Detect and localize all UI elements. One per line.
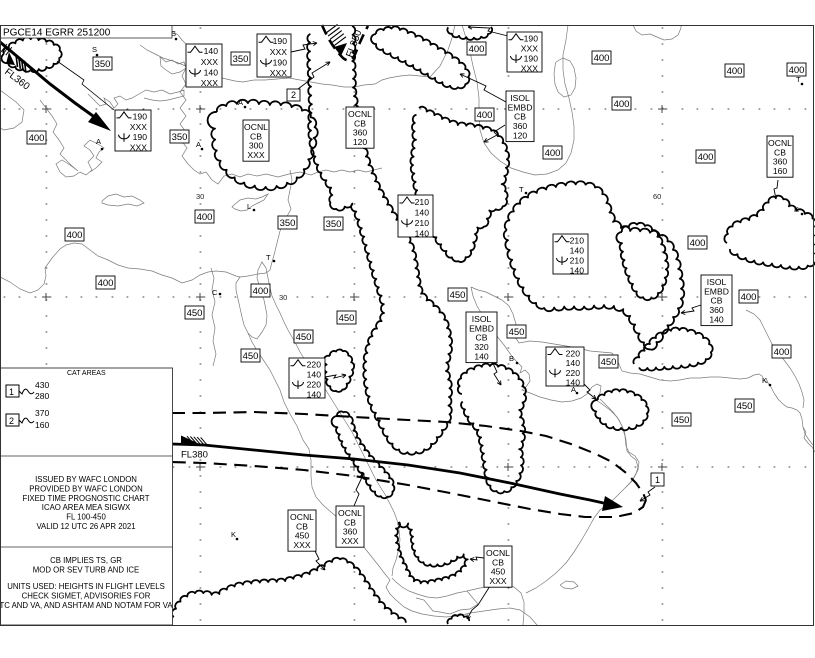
svg-text:220: 220 xyxy=(566,348,581,358)
svg-text:T: T xyxy=(796,75,801,84)
svg-text:400: 400 xyxy=(67,230,83,241)
svg-text:370: 370 xyxy=(35,408,49,418)
svg-text:140: 140 xyxy=(307,370,322,380)
svg-text:400: 400 xyxy=(690,238,706,249)
svg-text:350: 350 xyxy=(326,219,342,230)
svg-text:140: 140 xyxy=(709,315,724,325)
svg-text:FL 100-450: FL 100-450 xyxy=(66,513,106,522)
svg-text:2: 2 xyxy=(291,90,296,100)
svg-text:K: K xyxy=(762,376,767,385)
svg-text:A: A xyxy=(571,385,576,394)
svg-text:CAT AREAS: CAT AREAS xyxy=(67,370,106,377)
svg-text:K: K xyxy=(794,205,799,214)
svg-text:PGCE14 EGRR 251200: PGCE14 EGRR 251200 xyxy=(3,28,111,39)
svg-text:140: 140 xyxy=(415,228,430,238)
svg-text:S: S xyxy=(171,29,176,38)
svg-text:30: 30 xyxy=(279,293,287,302)
svg-text:1: 1 xyxy=(655,475,660,485)
svg-text:450: 450 xyxy=(509,327,525,338)
svg-text:140: 140 xyxy=(566,358,581,368)
svg-text:160: 160 xyxy=(773,166,788,176)
svg-text:450: 450 xyxy=(674,415,690,426)
svg-text:A: A xyxy=(96,137,101,146)
svg-text:450: 450 xyxy=(187,308,203,319)
svg-text:190: 190 xyxy=(133,112,148,122)
svg-text:CHECK SIGMET, ADVISORIES FOR: CHECK SIGMET, ADVISORIES FOR xyxy=(22,591,151,600)
svg-text:XXX: XXX xyxy=(130,122,147,132)
svg-text:400: 400 xyxy=(727,66,743,77)
svg-text:140: 140 xyxy=(474,352,489,362)
svg-text:K: K xyxy=(231,530,236,539)
svg-text:450: 450 xyxy=(243,351,259,362)
svg-text:XXX: XXX xyxy=(270,47,287,57)
svg-text:190: 190 xyxy=(273,36,288,46)
svg-text:XXX: XXX xyxy=(489,576,506,586)
svg-text:140: 140 xyxy=(570,265,585,275)
svg-text:XXX: XXX xyxy=(293,540,310,550)
svg-text:350: 350 xyxy=(280,218,296,229)
svg-text:450: 450 xyxy=(339,313,355,324)
svg-text:140: 140 xyxy=(204,68,219,78)
svg-text:450: 450 xyxy=(737,401,753,412)
svg-text:350: 350 xyxy=(95,59,111,70)
svg-text:450: 450 xyxy=(601,357,617,368)
svg-text:210: 210 xyxy=(570,236,585,246)
svg-text:280: 280 xyxy=(35,391,49,401)
svg-text:400: 400 xyxy=(774,347,790,358)
svg-text:190: 190 xyxy=(133,132,148,142)
svg-text:CB IMPLIES TS, GR: CB IMPLIES TS, GR xyxy=(50,556,122,565)
svg-text:PROVIDED BY WAFC LONDON: PROVIDED BY WAFC LONDON xyxy=(29,484,143,493)
svg-text:MOD OR SEV TURB AND ICE: MOD OR SEV TURB AND ICE xyxy=(33,565,139,574)
svg-text:220: 220 xyxy=(307,360,322,370)
svg-text:400: 400 xyxy=(545,148,561,159)
svg-text:XXX: XXX xyxy=(521,44,538,54)
svg-text:210: 210 xyxy=(570,256,585,266)
svg-text:140: 140 xyxy=(415,208,430,218)
svg-text:B: B xyxy=(509,354,514,363)
svg-text:A: A xyxy=(238,98,243,107)
svg-text:1: 1 xyxy=(9,387,14,397)
svg-text:400: 400 xyxy=(614,99,630,110)
svg-text:XXX: XXX xyxy=(201,57,218,67)
svg-text:T: T xyxy=(266,253,271,262)
svg-text:60: 60 xyxy=(653,192,661,201)
svg-text:190: 190 xyxy=(524,34,539,44)
svg-text:120: 120 xyxy=(353,137,368,147)
svg-text:400: 400 xyxy=(29,133,45,144)
svg-text:400: 400 xyxy=(741,292,757,303)
svg-text:VALID 12 UTC 26 APR 2021: VALID 12 UTC 26 APR 2021 xyxy=(36,522,135,531)
svg-text:S: S xyxy=(92,45,97,54)
svg-text:190: 190 xyxy=(524,54,539,64)
svg-text:UNITS USED: HEIGHTS IN FLIGHT: UNITS USED: HEIGHTS IN FLIGHT LEVELS xyxy=(7,582,165,591)
svg-text:XXX: XXX xyxy=(521,63,538,73)
svg-text:ISSUED BY WAFC LONDON: ISSUED BY WAFC LONDON xyxy=(35,475,137,484)
svg-text:190: 190 xyxy=(273,58,288,68)
svg-text:400: 400 xyxy=(477,110,493,121)
svg-text:T: T xyxy=(519,185,524,194)
svg-text:430: 430 xyxy=(35,380,49,390)
svg-text:A: A xyxy=(196,140,201,149)
svg-text:450: 450 xyxy=(296,332,312,343)
svg-text:400: 400 xyxy=(594,53,610,64)
svg-text:XXX: XXX xyxy=(270,68,287,78)
svg-text:140: 140 xyxy=(204,46,219,56)
svg-text:140: 140 xyxy=(570,246,585,256)
svg-text:350: 350 xyxy=(172,132,188,143)
svg-text:2: 2 xyxy=(9,416,14,426)
svg-text:140: 140 xyxy=(307,389,322,399)
svg-text:TC AND VA, AND ASHTAM AND NOTA: TC AND VA, AND ASHTAM AND NOTAM FOR VA xyxy=(0,601,173,610)
svg-text:30: 30 xyxy=(196,192,204,201)
svg-text:350: 350 xyxy=(233,54,249,65)
svg-text:FL380: FL380 xyxy=(181,450,208,461)
svg-text:L: L xyxy=(247,202,251,211)
svg-text:400: 400 xyxy=(253,286,269,297)
svg-text:ICAO AREA MEA SIGWX: ICAO AREA MEA SIGWX xyxy=(42,503,131,512)
svg-text:XXX: XXX xyxy=(341,536,358,546)
svg-text:C: C xyxy=(212,288,218,297)
svg-text:XXX: XXX xyxy=(130,142,147,152)
svg-text:210: 210 xyxy=(415,218,430,228)
svg-text:400: 400 xyxy=(98,278,114,289)
svg-text:220: 220 xyxy=(307,380,322,390)
svg-text:400: 400 xyxy=(197,212,213,223)
svg-text:400: 400 xyxy=(469,44,485,55)
svg-text:FIXED TIME PROGNOSTIC CHART: FIXED TIME PROGNOSTIC CHART xyxy=(22,494,149,503)
svg-text:210: 210 xyxy=(415,197,430,207)
svg-text:XXX: XXX xyxy=(247,150,264,160)
svg-text:400: 400 xyxy=(698,152,714,163)
svg-text:220: 220 xyxy=(566,368,581,378)
svg-text:450: 450 xyxy=(450,290,466,301)
svg-text:160: 160 xyxy=(35,420,49,430)
svg-text:120: 120 xyxy=(513,131,528,141)
svg-text:XXX: XXX xyxy=(201,78,218,88)
